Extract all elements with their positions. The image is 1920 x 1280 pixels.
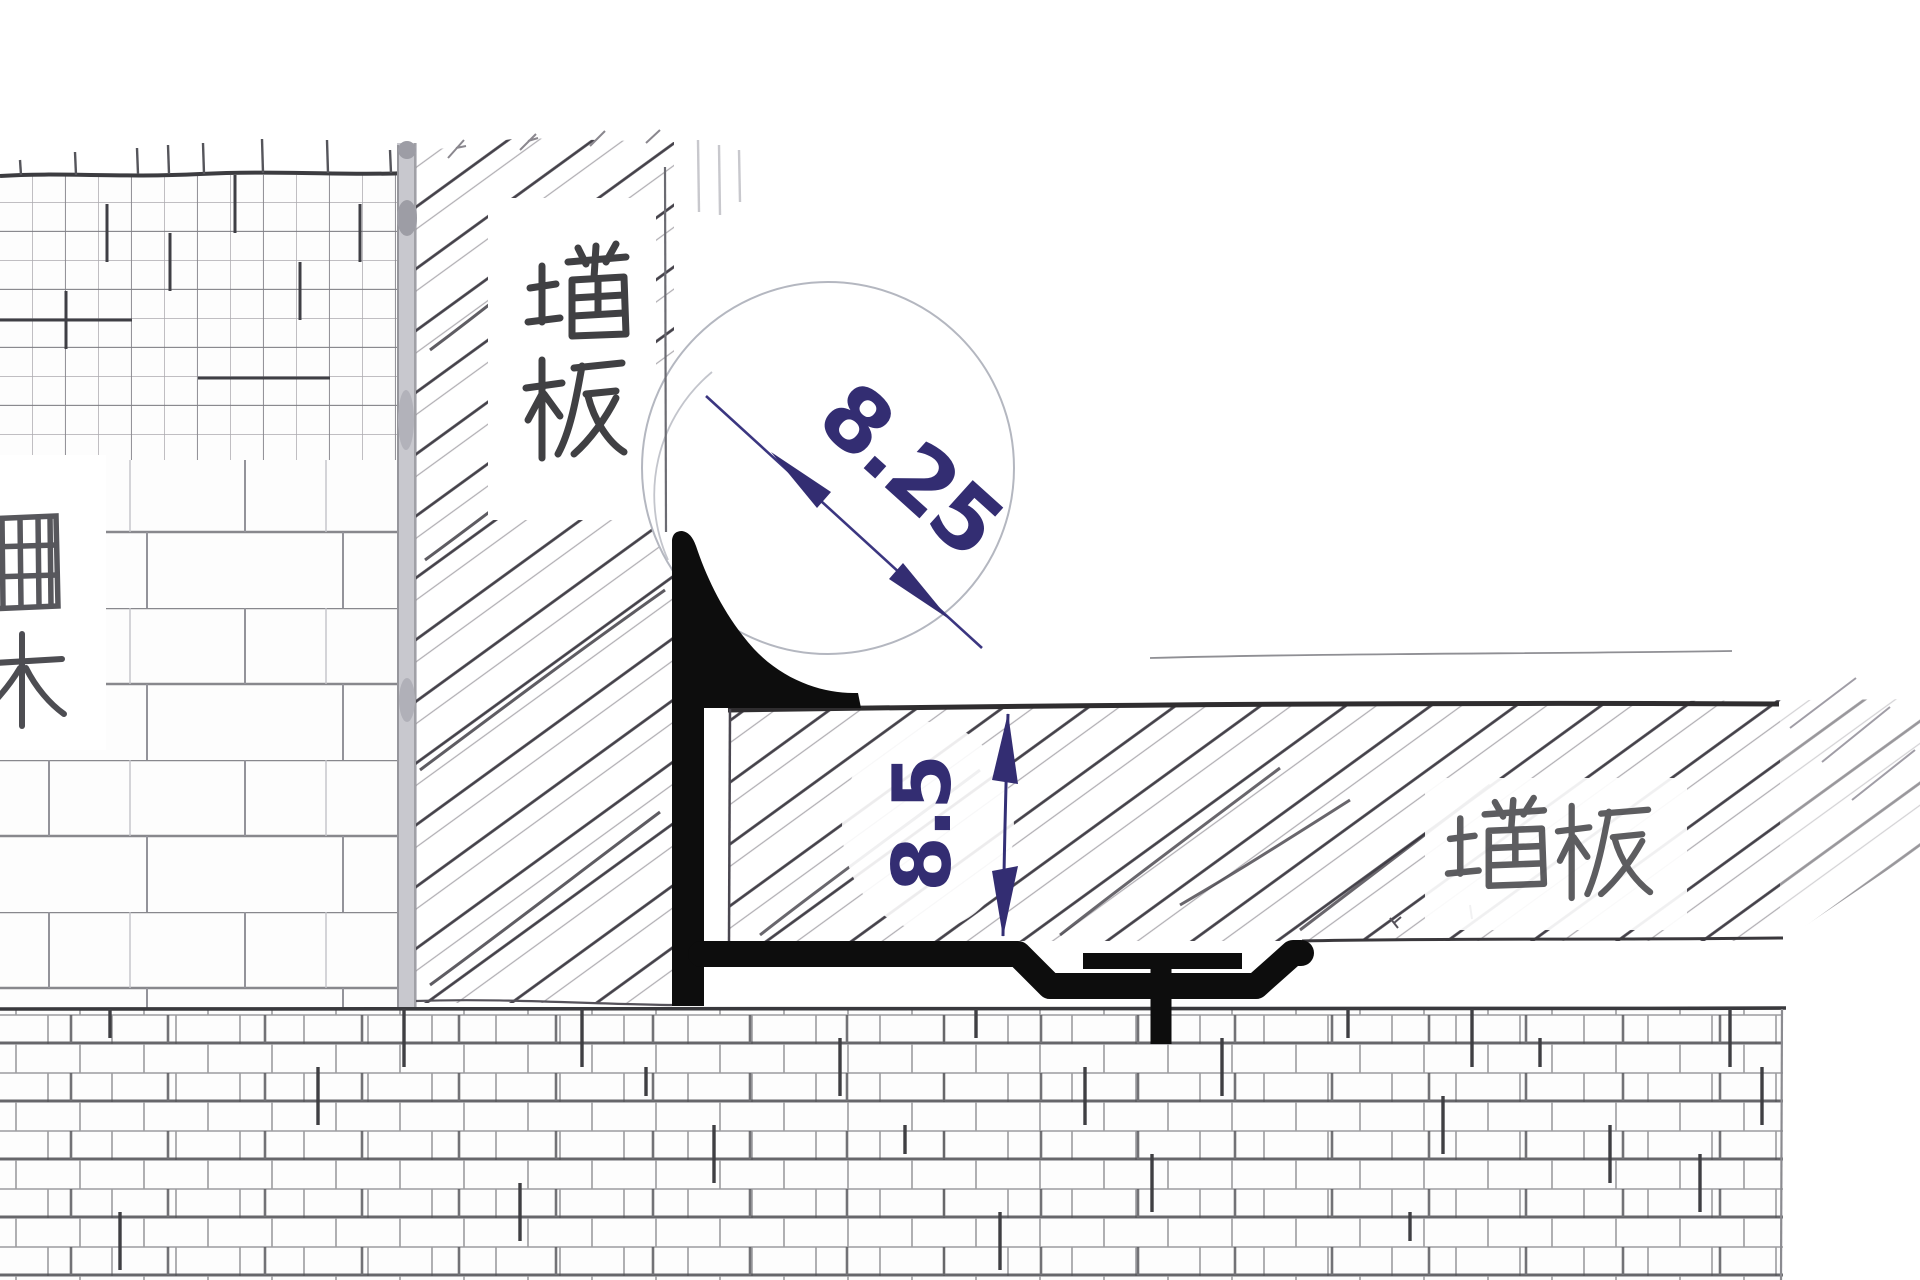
dimension-value-85: 8.5 <box>876 756 969 892</box>
vertical-panel-label <box>488 198 656 520</box>
backing-line <box>1150 651 1732 658</box>
construction-detail-drawing: 8.25 8.5 <box>0 0 1920 1280</box>
left-edge-label <box>0 455 106 750</box>
panel-left-edge <box>729 709 730 941</box>
bottom-tile-wall <box>0 1008 1786 1280</box>
horizontal-panel-label <box>1425 778 1687 930</box>
bottom-wall-top-line <box>0 1008 1786 1009</box>
drawing-canvas: 8.25 8.5 <box>0 0 1920 1280</box>
bottom-wall-right-edge <box>1781 1009 1782 1280</box>
wall-corner-edge <box>397 141 417 1008</box>
left-tile-wall <box>0 139 417 1008</box>
faint-wisps <box>698 140 740 215</box>
tick-whiskers <box>20 139 391 175</box>
panel-edge-line <box>665 167 666 532</box>
